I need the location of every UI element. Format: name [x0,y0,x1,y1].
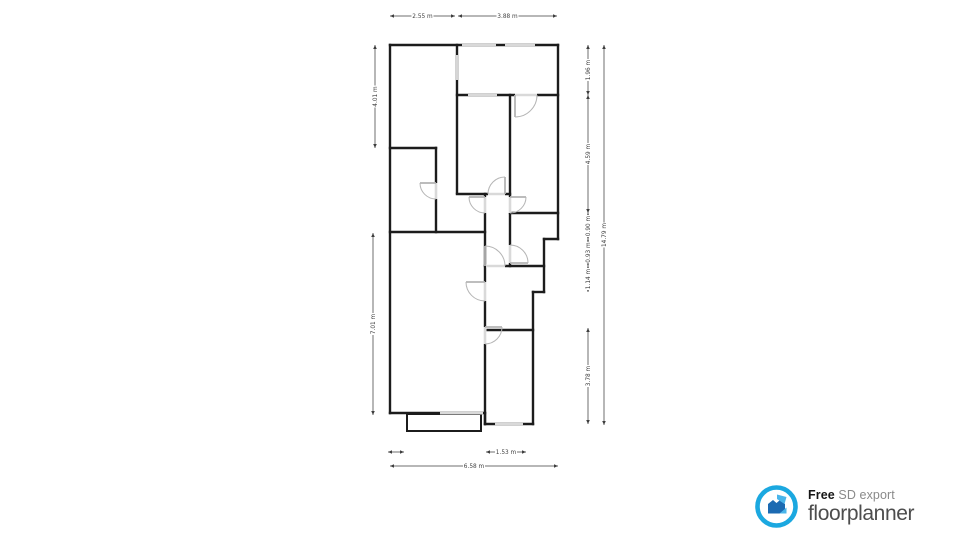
dimension-label-group: 14.79 m [601,223,608,248]
dimension-arrowhead [586,420,590,424]
dimension-label-group: 0.93 m [585,242,592,264]
door-swing-arc [515,95,537,117]
dimension-label-group: 4.01 m [372,86,379,108]
dimension-label-group: 6.58 m [463,463,485,470]
dimension-label: 6.58 m [464,464,485,470]
dimension-arrowhead [390,464,394,468]
door-swing-arc [488,177,505,194]
logo-brand-name: floorplanner [808,503,914,524]
dimension-label: 1.53 m [496,450,517,456]
dimension-arrowhead [400,450,404,454]
dimension-label-group: 1.53 m [495,449,517,456]
logo-free-label: Free [808,488,835,502]
dimension-label-group: 3.78 m [585,365,592,387]
floorplanner-logo-text: Free SD export floorplanner [808,489,914,524]
dimension-label-group: 0.90 m [585,215,592,237]
dimension-arrowhead [373,45,377,49]
dimension-arrowhead [486,450,490,454]
dimension-arrowhead [371,411,375,415]
dimension-label: 3.78 m [586,365,592,386]
dimension-arrowhead [554,464,558,468]
dimension-arrowhead [586,91,590,95]
door-swing-arc [510,245,528,263]
floorplanner-logo: Free SD export floorplanner [753,483,914,530]
dimension-arrowhead [371,233,375,237]
dimension-arrowhead [390,14,394,18]
dimension-arrowhead [586,209,590,213]
dimension-label-group: 4.59 m [585,143,592,165]
dimension-arrowhead [602,421,606,425]
dimension-label-group: 1.96 m [585,59,592,81]
dimension-label: 14.79 m [602,223,608,247]
dimension-label: 0.90 m [586,215,592,236]
floorplan-canvas: 2.55 m3.88 m4.01 m7.01 m1.96 m4.59 m0.90… [0,0,960,540]
door-swing-arc [469,197,485,213]
dimension-label-group: 7.01 m [370,313,377,335]
dimension-arrowhead [388,450,392,454]
dimension-label: 3.88 m [497,14,518,20]
dimension-arrowhead [373,144,377,148]
dimension-label: 0.93 m [586,242,592,263]
dimension-arrowhead [586,328,590,332]
door-swing-arc [485,246,505,266]
dimension-arrowhead [586,45,590,49]
dimension-arrowhead [586,95,590,99]
dimension-arrowhead [602,45,606,49]
bay-window [407,414,481,431]
dimension-arrowhead [451,14,455,18]
logo-export-label: SD export [838,488,894,502]
dimension-label: 4.01 m [373,86,379,107]
door-swing-arc [466,282,485,301]
dimension-label: 4.59 m [586,143,592,164]
dimension-label-group: 2.55 m [412,13,434,20]
dimension-label-group: 3.88 m [497,13,519,20]
logo-tagline: Free SD export [808,489,914,502]
floorplanner-house-icon [753,483,800,530]
dimension-label: 2.55 m [412,14,433,20]
dimension-label: 1.96 m [586,59,592,80]
dimension-arrowhead [458,14,462,18]
dimension-arrowhead [522,450,526,454]
door-swing-arc [420,183,436,199]
dimension-label-group: 1.14 m [585,268,592,290]
floorplan-export-page: 2.55 m3.88 m4.01 m7.01 m1.96 m4.59 m0.90… [0,0,960,540]
door-swing-arc [510,197,526,213]
dimension-arrowhead [553,14,557,18]
dimension-label: 1.14 m [586,268,592,289]
dimension-label: 7.01 m [371,313,377,334]
